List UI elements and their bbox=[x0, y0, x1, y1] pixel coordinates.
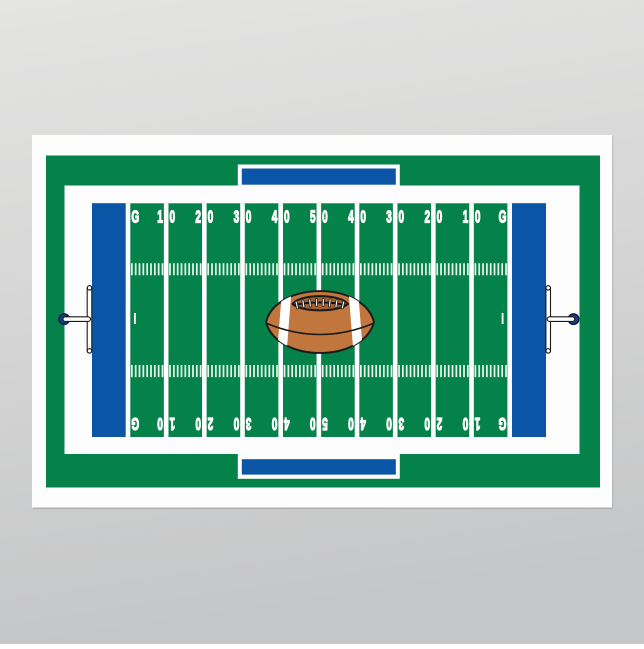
svg-text:0: 0 bbox=[310, 413, 316, 433]
svg-text:0: 0 bbox=[463, 413, 469, 433]
svg-text:G: G bbox=[131, 207, 139, 227]
svg-text:0: 0 bbox=[284, 207, 290, 227]
svg-text:G: G bbox=[499, 207, 507, 227]
svg-text:1: 1 bbox=[463, 207, 469, 227]
svg-text:3: 3 bbox=[386, 207, 392, 227]
svg-text:1: 1 bbox=[157, 207, 163, 227]
svg-text:5: 5 bbox=[310, 207, 316, 227]
svg-text:3: 3 bbox=[246, 413, 252, 433]
svg-text:0: 0 bbox=[424, 413, 430, 433]
svg-text:4: 4 bbox=[360, 413, 366, 433]
svg-text:2: 2 bbox=[424, 207, 430, 227]
svg-text:0: 0 bbox=[386, 413, 392, 433]
svg-text:1: 1 bbox=[475, 413, 481, 433]
svg-text:0: 0 bbox=[437, 207, 443, 227]
svg-text:4: 4 bbox=[272, 207, 278, 227]
svg-text:0: 0 bbox=[234, 413, 240, 433]
svg-text:2: 2 bbox=[195, 207, 201, 227]
svg-text:0: 0 bbox=[246, 207, 252, 227]
svg-text:3: 3 bbox=[234, 207, 240, 227]
svg-text:0: 0 bbox=[195, 413, 201, 433]
svg-text:1: 1 bbox=[169, 413, 175, 433]
svg-text:2: 2 bbox=[208, 413, 214, 433]
svg-text:0: 0 bbox=[157, 413, 163, 433]
svg-text:0: 0 bbox=[475, 207, 481, 227]
svg-text:3: 3 bbox=[398, 413, 404, 433]
svg-text:4: 4 bbox=[283, 413, 289, 433]
svg-text:0: 0 bbox=[360, 207, 366, 227]
svg-text:5: 5 bbox=[322, 413, 328, 433]
svg-text:0: 0 bbox=[398, 207, 404, 227]
svg-text:0: 0 bbox=[208, 207, 214, 227]
svg-text:0: 0 bbox=[169, 207, 175, 227]
svg-text:4: 4 bbox=[348, 207, 354, 227]
svg-text:0: 0 bbox=[272, 413, 278, 433]
svg-text:0: 0 bbox=[348, 413, 354, 433]
svg-text:G: G bbox=[498, 413, 506, 433]
svg-text:G: G bbox=[131, 413, 139, 433]
svg-text:0: 0 bbox=[322, 207, 328, 227]
svg-text:2: 2 bbox=[437, 413, 443, 433]
